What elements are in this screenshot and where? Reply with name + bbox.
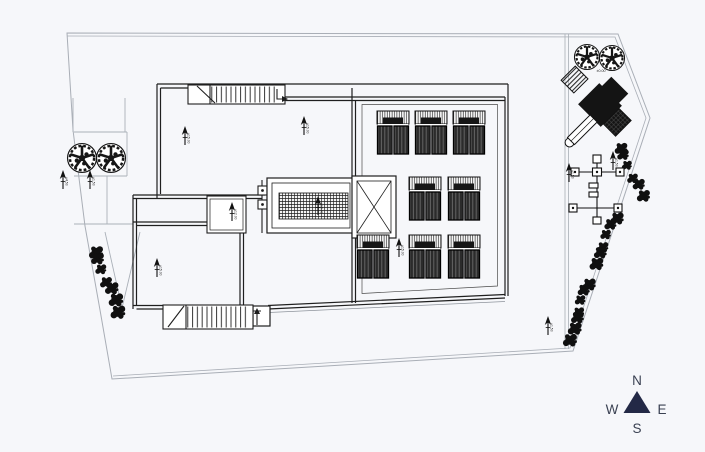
solar-unit-icon [377, 111, 409, 154]
shrub-icon [95, 264, 106, 274]
site-plan-drawing: +4.50+1.50+15.00+15.00+12.00+15.00+15.00… [0, 0, 705, 452]
level-marker-label: +1.50 [92, 177, 96, 186]
open-shaft-xbox [352, 176, 396, 238]
trees-group [68, 44, 625, 172]
compass-rose: N W E S [606, 373, 667, 436]
level-marker-label: +1.50 [550, 323, 554, 332]
level-marker: +1.50 [566, 163, 575, 182]
level-marker: +15.00 [396, 238, 405, 257]
level-marker-label: +15.00 [320, 203, 324, 214]
level-marker-label: +1.50 [571, 170, 575, 179]
solar-unit-icon [415, 111, 447, 154]
level-marker-label: +1.50 [615, 158, 619, 167]
shrub-icon [590, 258, 604, 270]
compass-east-label: E [657, 402, 666, 417]
solar-unit-icon [448, 177, 480, 220]
compass-needle-icon [624, 391, 651, 413]
compass-south-label: S [632, 421, 641, 436]
solar-unit-icon [409, 177, 441, 220]
level-marker: +15.00 [301, 116, 310, 135]
level-marker: +1.50 [610, 151, 619, 170]
stair-bulkhead-room [207, 196, 246, 233]
shrub-icon [600, 230, 611, 239]
roof-stair-top [188, 85, 288, 104]
site-plan-canvas: +4.50+1.50+15.00+15.00+12.00+15.00+15.00… [0, 0, 705, 452]
level-marker-label: +12.00 [234, 209, 238, 220]
level-marker-label: +15.00 [159, 265, 163, 276]
shrub-icon [109, 293, 123, 306]
hardscape-lines [73, 98, 140, 308]
tiny-annotation-label: ±0.00 [597, 69, 606, 73]
tiny-labels-group: ±0.00 [597, 69, 606, 73]
tree-icon [68, 144, 97, 173]
level-marker-label: +15.00 [306, 123, 310, 134]
solar-unit-icon [409, 235, 441, 278]
shrub-icon [568, 322, 582, 334]
shrub-icon [111, 306, 126, 319]
tree-icon [599, 45, 624, 70]
connector-wall [258, 180, 267, 233]
level-marker-label: +15.00 [401, 245, 405, 256]
level-marker: +4.50 [60, 170, 69, 189]
solar-unit-icon [448, 235, 480, 278]
shrub-icon [637, 190, 650, 202]
shrub-icon [594, 247, 607, 258]
level-marker: +15.00 [154, 258, 163, 277]
level-marker: +1.50 [87, 170, 96, 189]
shrub-icon [571, 312, 584, 323]
skylight [267, 178, 355, 233]
solar-unit-icon [453, 111, 485, 154]
level-marker: +15.00 [182, 126, 191, 145]
compass-west-label: W [606, 402, 619, 417]
level-marker-label: +15.00 [187, 133, 191, 144]
shrub-icon [578, 285, 590, 296]
level-marker-label: +4.50 [65, 177, 69, 186]
roof-stair-bottom [163, 305, 261, 329]
compass-north-label: N [632, 373, 642, 388]
tree-icon [97, 144, 126, 173]
shrub-icon [575, 295, 586, 304]
solar-unit-icon [357, 235, 389, 278]
level-marker: +1.50 [545, 316, 554, 335]
tree-icon [574, 44, 599, 69]
